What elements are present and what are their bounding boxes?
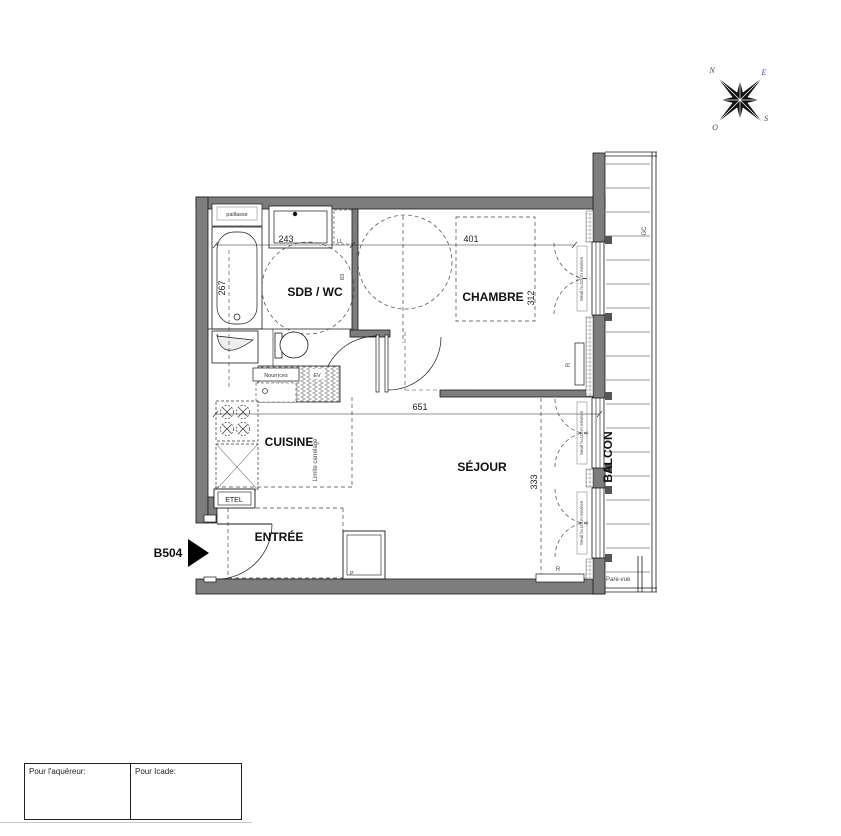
etel-label: ETEL xyxy=(225,497,243,504)
wall-partition-sdb xyxy=(352,209,358,337)
title-block-acquirer: Pour l'aquéreur: xyxy=(25,764,131,819)
wall-left xyxy=(196,197,208,523)
radiator-sejour: R xyxy=(536,567,584,582)
fridge-slot xyxy=(216,444,258,490)
guardrail-label: GC xyxy=(642,226,648,236)
dim-sdb-depth: 267 xyxy=(217,280,227,295)
window-sejour-1: Seuil h=10cm environ xyxy=(555,398,604,468)
compass-south-label: S xyxy=(764,114,768,123)
floor-plan-drawing: N E S O xyxy=(0,0,841,836)
balcony-pilasters xyxy=(605,236,612,562)
wall-right-a xyxy=(593,153,605,242)
pare-vue-panel xyxy=(638,556,642,592)
window-chambre: Seuil h=10cm environ xyxy=(554,242,604,315)
compass-rose: N E S O xyxy=(708,66,768,132)
room-label-chambre: CHAMBRE xyxy=(462,290,523,304)
corner-basin xyxy=(212,331,258,363)
appliance-slot xyxy=(256,383,296,402)
wall-door-stub xyxy=(350,330,390,337)
radiator-label: R xyxy=(566,362,572,367)
radiator-chambre: R xyxy=(566,343,584,385)
bedroom xyxy=(358,215,535,343)
sdb-door-leaf xyxy=(376,335,379,392)
title-block: Pour l'aquéreur: Pour Icade: xyxy=(24,763,242,820)
door-width-dim: 83 xyxy=(340,274,346,280)
nourrices-label: Nourrices xyxy=(264,373,288,379)
kitchen: EV Nourrices Limite carrelage xyxy=(215,366,352,490)
balcony xyxy=(605,152,657,592)
wall-right-b xyxy=(593,315,605,398)
washing-machine-label: LL xyxy=(337,239,343,245)
page-edge-line xyxy=(0,822,252,823)
compass-facets xyxy=(719,79,761,121)
dim-sejour-depth: 333 xyxy=(529,474,539,489)
placard-label: P xyxy=(350,571,354,577)
tile-limit-label: Limite carrelage xyxy=(313,438,319,481)
entrance-arrow xyxy=(188,539,209,567)
dim-chambre-width: 401 xyxy=(463,234,478,244)
wall-right-d xyxy=(593,558,605,594)
compass-east-label: E xyxy=(761,68,767,77)
turning-circle-chambre xyxy=(358,215,452,309)
bathtub xyxy=(212,227,262,329)
dim-chambre-depth: 312 xyxy=(526,290,536,305)
wall-chambre-sejour xyxy=(440,390,593,397)
unit-number: B504 xyxy=(154,546,183,560)
paillasse-label: paillasse xyxy=(226,212,247,218)
cooktop xyxy=(216,401,258,441)
chambre-door-leaf xyxy=(385,335,388,392)
room-label-sdb: SDB / WC xyxy=(287,285,343,299)
compass-north-label: N xyxy=(708,66,715,75)
balcony-deck-lines xyxy=(606,164,650,572)
dim-sdb-width: 243 xyxy=(278,234,293,244)
pare-vue-label: Pare-vue xyxy=(606,577,631,583)
windows: Seuil h=10cm environ Seuil h=10cm enviro… xyxy=(554,242,604,558)
sink-label: EV xyxy=(313,373,321,379)
dim-sejour-width: 651 xyxy=(412,402,427,412)
door-jambs xyxy=(204,515,216,582)
title-block-icade: Pour Icade: xyxy=(131,764,241,819)
room-label-sejour: SÉJOUR xyxy=(457,459,507,474)
compass-west-label: O xyxy=(712,123,718,132)
room-label-entree: ENTRÉE xyxy=(255,529,304,544)
faucet-dot xyxy=(293,212,297,216)
room-label-cuisine: CUISINE xyxy=(265,435,314,449)
toilet xyxy=(273,329,308,366)
chambre-door-swing xyxy=(388,337,441,390)
radiator-label: R xyxy=(556,567,561,573)
bed-clearance-zone xyxy=(456,217,535,321)
window-sejour-2: Seuil h=10cm environ xyxy=(555,488,604,558)
